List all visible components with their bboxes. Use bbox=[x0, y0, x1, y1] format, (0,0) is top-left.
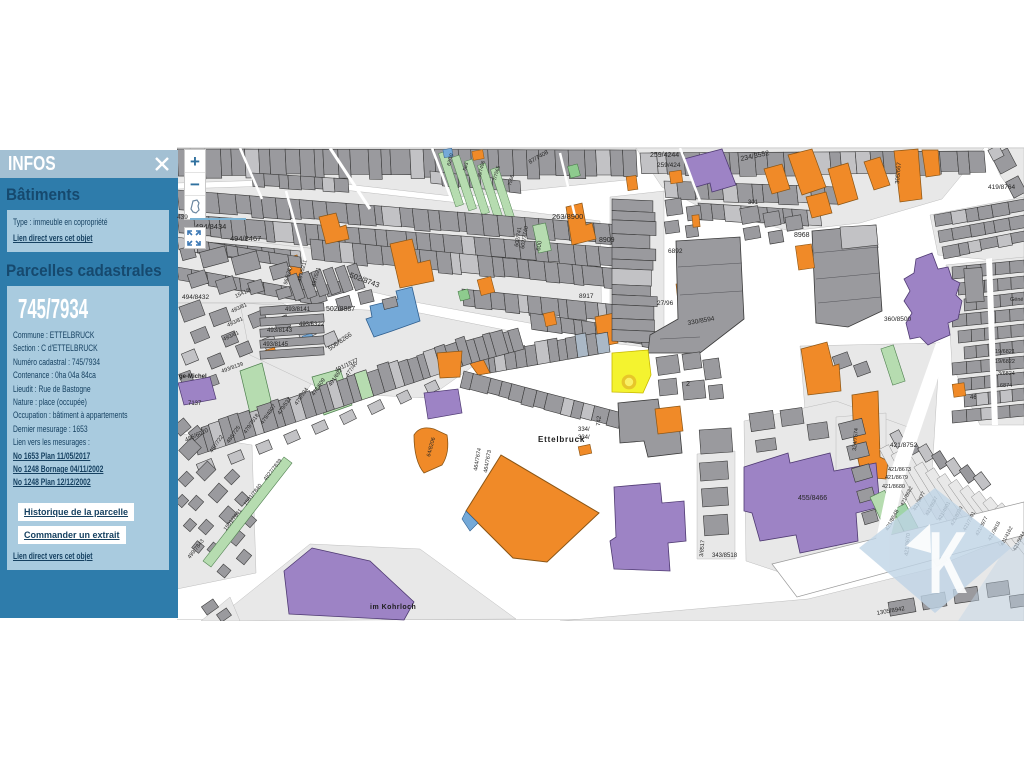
svg-text:27/96: 27/96 bbox=[657, 300, 674, 307]
svg-text:421/8679: 421/8679 bbox=[885, 475, 908, 481]
svg-text:493/8141: 493/8141 bbox=[285, 307, 311, 313]
svg-text:464/7674: 464/7674 bbox=[473, 448, 483, 472]
svg-text:493/8145: 493/8145 bbox=[263, 342, 289, 348]
svg-text:7137: 7137 bbox=[188, 401, 202, 407]
svg-text:455/8466: 455/8466 bbox=[798, 495, 827, 502]
svg-text:19/6822: 19/6822 bbox=[995, 359, 1015, 365]
svg-text:334/: 334/ bbox=[578, 427, 590, 433]
svg-text:494/8467: 494/8467 bbox=[230, 234, 261, 243]
svg-text:8909: 8909 bbox=[599, 237, 615, 244]
svg-text:263/8900: 263/8900 bbox=[552, 212, 583, 221]
svg-text:ge-Michel: ge-Michel bbox=[179, 374, 207, 380]
svg-text:8968: 8968 bbox=[794, 232, 810, 239]
svg-text:46: 46 bbox=[970, 395, 977, 401]
svg-text:8917: 8917 bbox=[579, 293, 594, 300]
svg-text:6874: 6874 bbox=[1000, 383, 1012, 389]
svg-text:419/8764: 419/8764 bbox=[988, 184, 1015, 191]
svg-text:2: 2 bbox=[686, 381, 690, 388]
svg-text:493/5322: 493/5322 bbox=[299, 322, 325, 328]
svg-text:493/8143: 493/8143 bbox=[267, 328, 293, 334]
svg-text:343/8518: 343/8518 bbox=[712, 553, 738, 559]
svg-text:502/8887: 502/8887 bbox=[326, 306, 355, 313]
svg-text:360/8500: 360/8500 bbox=[884, 316, 911, 323]
svg-text:Géné: Géné bbox=[1010, 297, 1023, 303]
svg-text:6892: 6892 bbox=[668, 248, 683, 255]
svg-text:421/8673: 421/8673 bbox=[888, 467, 911, 473]
svg-text:im Kohrloch: im Kohrloch bbox=[370, 604, 416, 611]
svg-text:19/6821: 19/6821 bbox=[995, 349, 1015, 355]
svg-text:301: 301 bbox=[748, 200, 759, 206]
svg-text:421/8752: 421/8752 bbox=[890, 442, 917, 449]
svg-text:742: 742 bbox=[596, 415, 603, 426]
svg-text:259/424: 259/424 bbox=[657, 162, 681, 169]
svg-text:3/6824: 3/6824 bbox=[998, 371, 1015, 377]
svg-text:Ettelbruck: Ettelbruck bbox=[538, 435, 585, 444]
svg-text:494/8432: 494/8432 bbox=[182, 294, 209, 301]
svg-text:259/4244: 259/4244 bbox=[650, 152, 679, 159]
svg-text:421/8680: 421/8680 bbox=[882, 484, 905, 490]
svg-text:K: K bbox=[928, 514, 967, 613]
